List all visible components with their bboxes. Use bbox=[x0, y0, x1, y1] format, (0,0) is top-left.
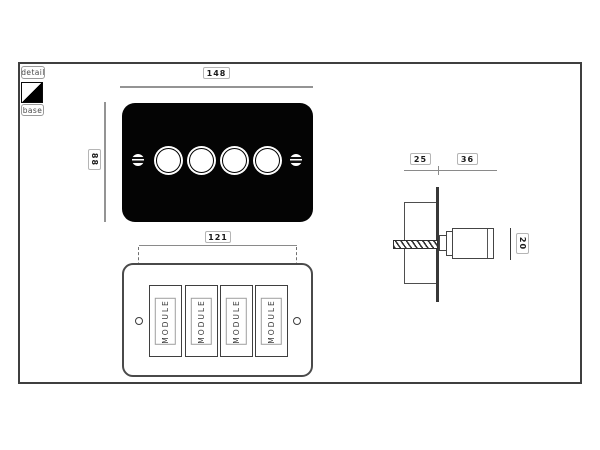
detail-base-swatch-icon bbox=[21, 82, 43, 103]
faceplate-screw-right bbox=[290, 154, 302, 166]
legend-detail-label: detail bbox=[21, 66, 45, 79]
knob-diameter-dimension-line bbox=[510, 228, 511, 260]
dimension-divider-tick bbox=[438, 166, 439, 175]
front-width-dimension-line bbox=[120, 86, 313, 88]
module-slot-1: MODULE bbox=[149, 285, 182, 357]
knob-projection-dimension-label: 36 bbox=[457, 153, 478, 165]
legend-base-label: base bbox=[21, 104, 44, 116]
dimmer-knob-4 bbox=[253, 146, 282, 175]
mounting-screw-thread bbox=[393, 240, 438, 249]
dimmer-knob-2 bbox=[187, 146, 216, 175]
module-label: MODULE bbox=[261, 298, 282, 345]
module-slot-3: MODULE bbox=[220, 285, 253, 357]
module-label: MODULE bbox=[191, 298, 212, 345]
knob-side-profile bbox=[452, 228, 494, 259]
dimmer-knob-1 bbox=[154, 146, 183, 175]
module-slot-4: MODULE bbox=[255, 285, 288, 357]
front-height-dimension-line bbox=[104, 102, 106, 222]
screw-spacing-dimension-line bbox=[139, 245, 297, 246]
module-label: MODULE bbox=[155, 298, 176, 345]
screw-hole-right bbox=[293, 317, 301, 325]
faceplate-front-view bbox=[122, 103, 313, 222]
module-label: MODULE bbox=[226, 298, 247, 345]
screw-hole-left bbox=[135, 317, 143, 325]
knob-diameter-dimension-label: 20 bbox=[516, 233, 529, 254]
front-height-dimension-label: 88 bbox=[88, 149, 101, 170]
screw-spacing-dimension-label: 121 bbox=[205, 231, 231, 243]
module-slot-2: MODULE bbox=[185, 285, 218, 357]
box-depth-dimension-label: 25 bbox=[410, 153, 431, 165]
faceplate-screw-left bbox=[132, 154, 144, 166]
dimmer-knob-3 bbox=[220, 146, 249, 175]
side-depth-dimension-line bbox=[404, 170, 497, 171]
front-width-dimension-label: 148 bbox=[203, 67, 230, 79]
